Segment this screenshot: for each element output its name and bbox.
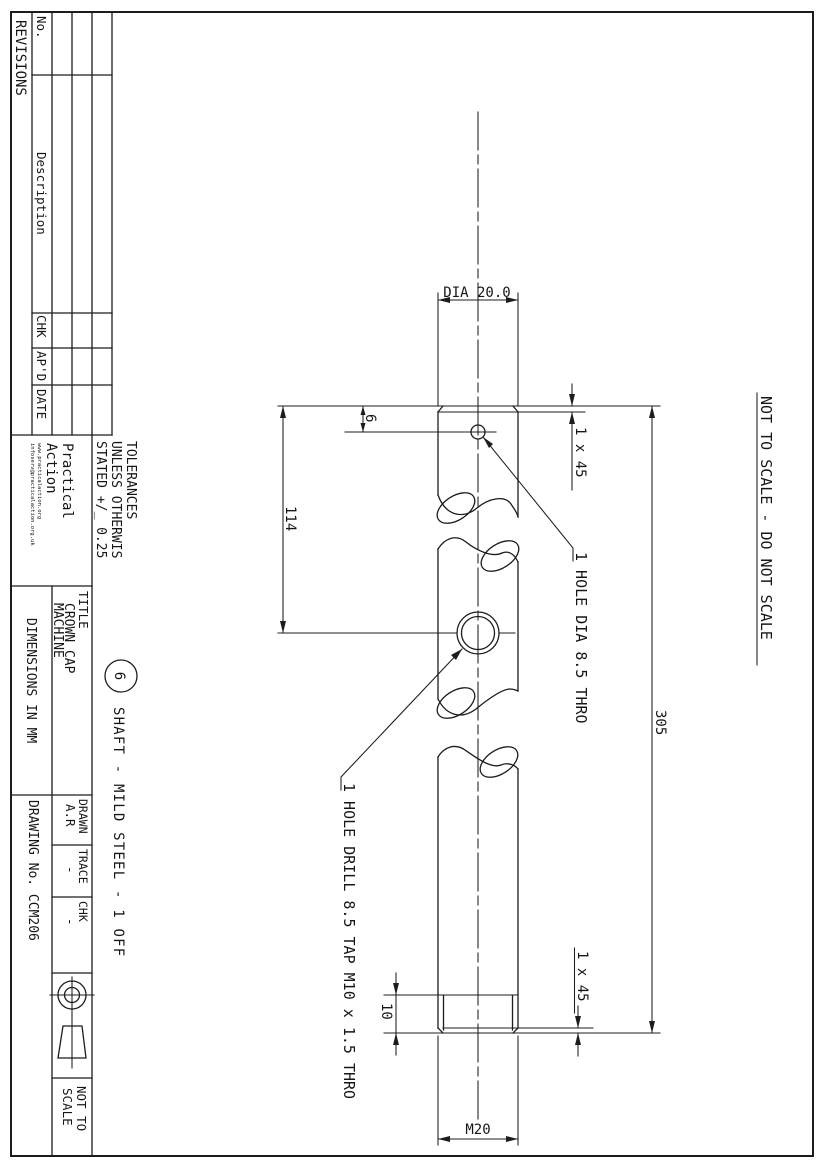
part-note: 6 SHAFT - MILD STEEL - 1 OFF <box>105 660 137 957</box>
dimensions-note: DIMENSIONS IN MM <box>23 618 38 743</box>
dim-hole-offset: 6 <box>361 406 379 432</box>
organisation-box: Practical Action www.practicalaction.org… <box>11 435 92 586</box>
part-note-label: SHAFT - MILD STEEL - 1 OFF <box>110 707 126 957</box>
dim-hole-offset-text: 6 <box>362 414 378 422</box>
dim-thread-length: 10 <box>378 973 399 1055</box>
revisions-col-apd: AP'D <box>34 351 49 381</box>
dim-hole-distance: 114 <box>280 406 298 633</box>
chamfer-top-text: 1 x 45 <box>572 427 588 478</box>
note-mid-hole: 1 HOLE DRILL 8.5 TAP M10 x 1.5 THRO <box>340 783 358 1099</box>
leader-top-hole: 1 HOLE DIA 8.5 THRO <box>483 437 590 724</box>
revisions-col-description: Description <box>34 152 49 235</box>
tolerances-line3: STATED +/_ 0.25 <box>93 441 108 558</box>
drawing-canvas: REVISIONS No. Description CHK AP'D DATE … <box>0 0 826 1169</box>
title-label: TITLE <box>76 591 91 629</box>
scale-note-line2: SCALE <box>60 1088 75 1126</box>
chk-value: - <box>63 918 78 926</box>
org-name-line1: Practical <box>59 443 75 519</box>
org-url: www.practicalaction.org <box>36 443 42 519</box>
title-value-line2: MACHINE <box>50 603 65 658</box>
revisions-col-no: No. <box>34 16 49 39</box>
dim-thread-size: M20 <box>438 1122 518 1142</box>
tolerances-line2: UNLESS OTHERWIS <box>108 441 123 558</box>
dim-hole-distance-text: 114 <box>282 506 298 531</box>
title-block: TITLE CROWN CAP MACHINE DIMENSIONS IN MM… <box>11 586 92 1156</box>
third-angle-projection-icon <box>50 977 94 1068</box>
drawing-number: DRAWING No. CCM206 <box>25 800 40 941</box>
dim-diameter-text: DIA 20.0 <box>443 285 510 301</box>
drawn-value: A.R <box>63 804 78 827</box>
scale-note-line1: NOT TO <box>74 1086 89 1131</box>
dim-overall-length: 305 <box>649 406 668 1033</box>
trace-value: - <box>63 866 78 874</box>
chamfer-bottom-text: 1 x 45 <box>574 951 590 1002</box>
tolerances-note: TOLERANCES UNLESS OTHERWIS STATED +/_ 0.… <box>93 441 138 558</box>
org-name-line2: Action <box>43 443 59 494</box>
revisions-table: REVISIONS No. Description CHK AP'D DATE <box>11 12 112 435</box>
scale-warning-text: NOT TO SCALE - DO NOT SCALE <box>757 396 775 640</box>
dim-diameter: DIA 20.0 <box>438 285 518 303</box>
extension-lines <box>278 293 660 1145</box>
sheet-border <box>11 12 813 1156</box>
leader-mid-hole: 1 HOLE DRILL 8.5 TAP M10 x 1.5 THRO <box>340 649 462 1099</box>
dim-overall-length-text: 305 <box>652 710 668 735</box>
revisions-col-chk: CHK <box>34 315 49 338</box>
dim-thread-size-text: M20 <box>465 1122 490 1138</box>
engineering-drawing-sheet: REVISIONS No. Description CHK AP'D DATE … <box>0 0 826 1169</box>
tolerances-line1: TOLERANCES <box>123 441 138 519</box>
balloon-number: 6 <box>111 672 127 680</box>
chamfer-note-bottom: 1 x 45 <box>574 948 590 1056</box>
note-top-hole: 1 HOLE DIA 8.5 THRO <box>572 552 590 724</box>
chamfer-note-top: 1 x 45 <box>569 384 588 490</box>
revisions-col-date: DATE <box>34 389 49 419</box>
org-email: infoserv@practicalaction.org.uk <box>29 443 35 546</box>
dim-thread-length-text: 10 <box>378 1003 394 1020</box>
scale-warning: NOT TO SCALE - DO NOT SCALE <box>757 393 775 665</box>
revisions-title: REVISIONS <box>12 20 28 96</box>
